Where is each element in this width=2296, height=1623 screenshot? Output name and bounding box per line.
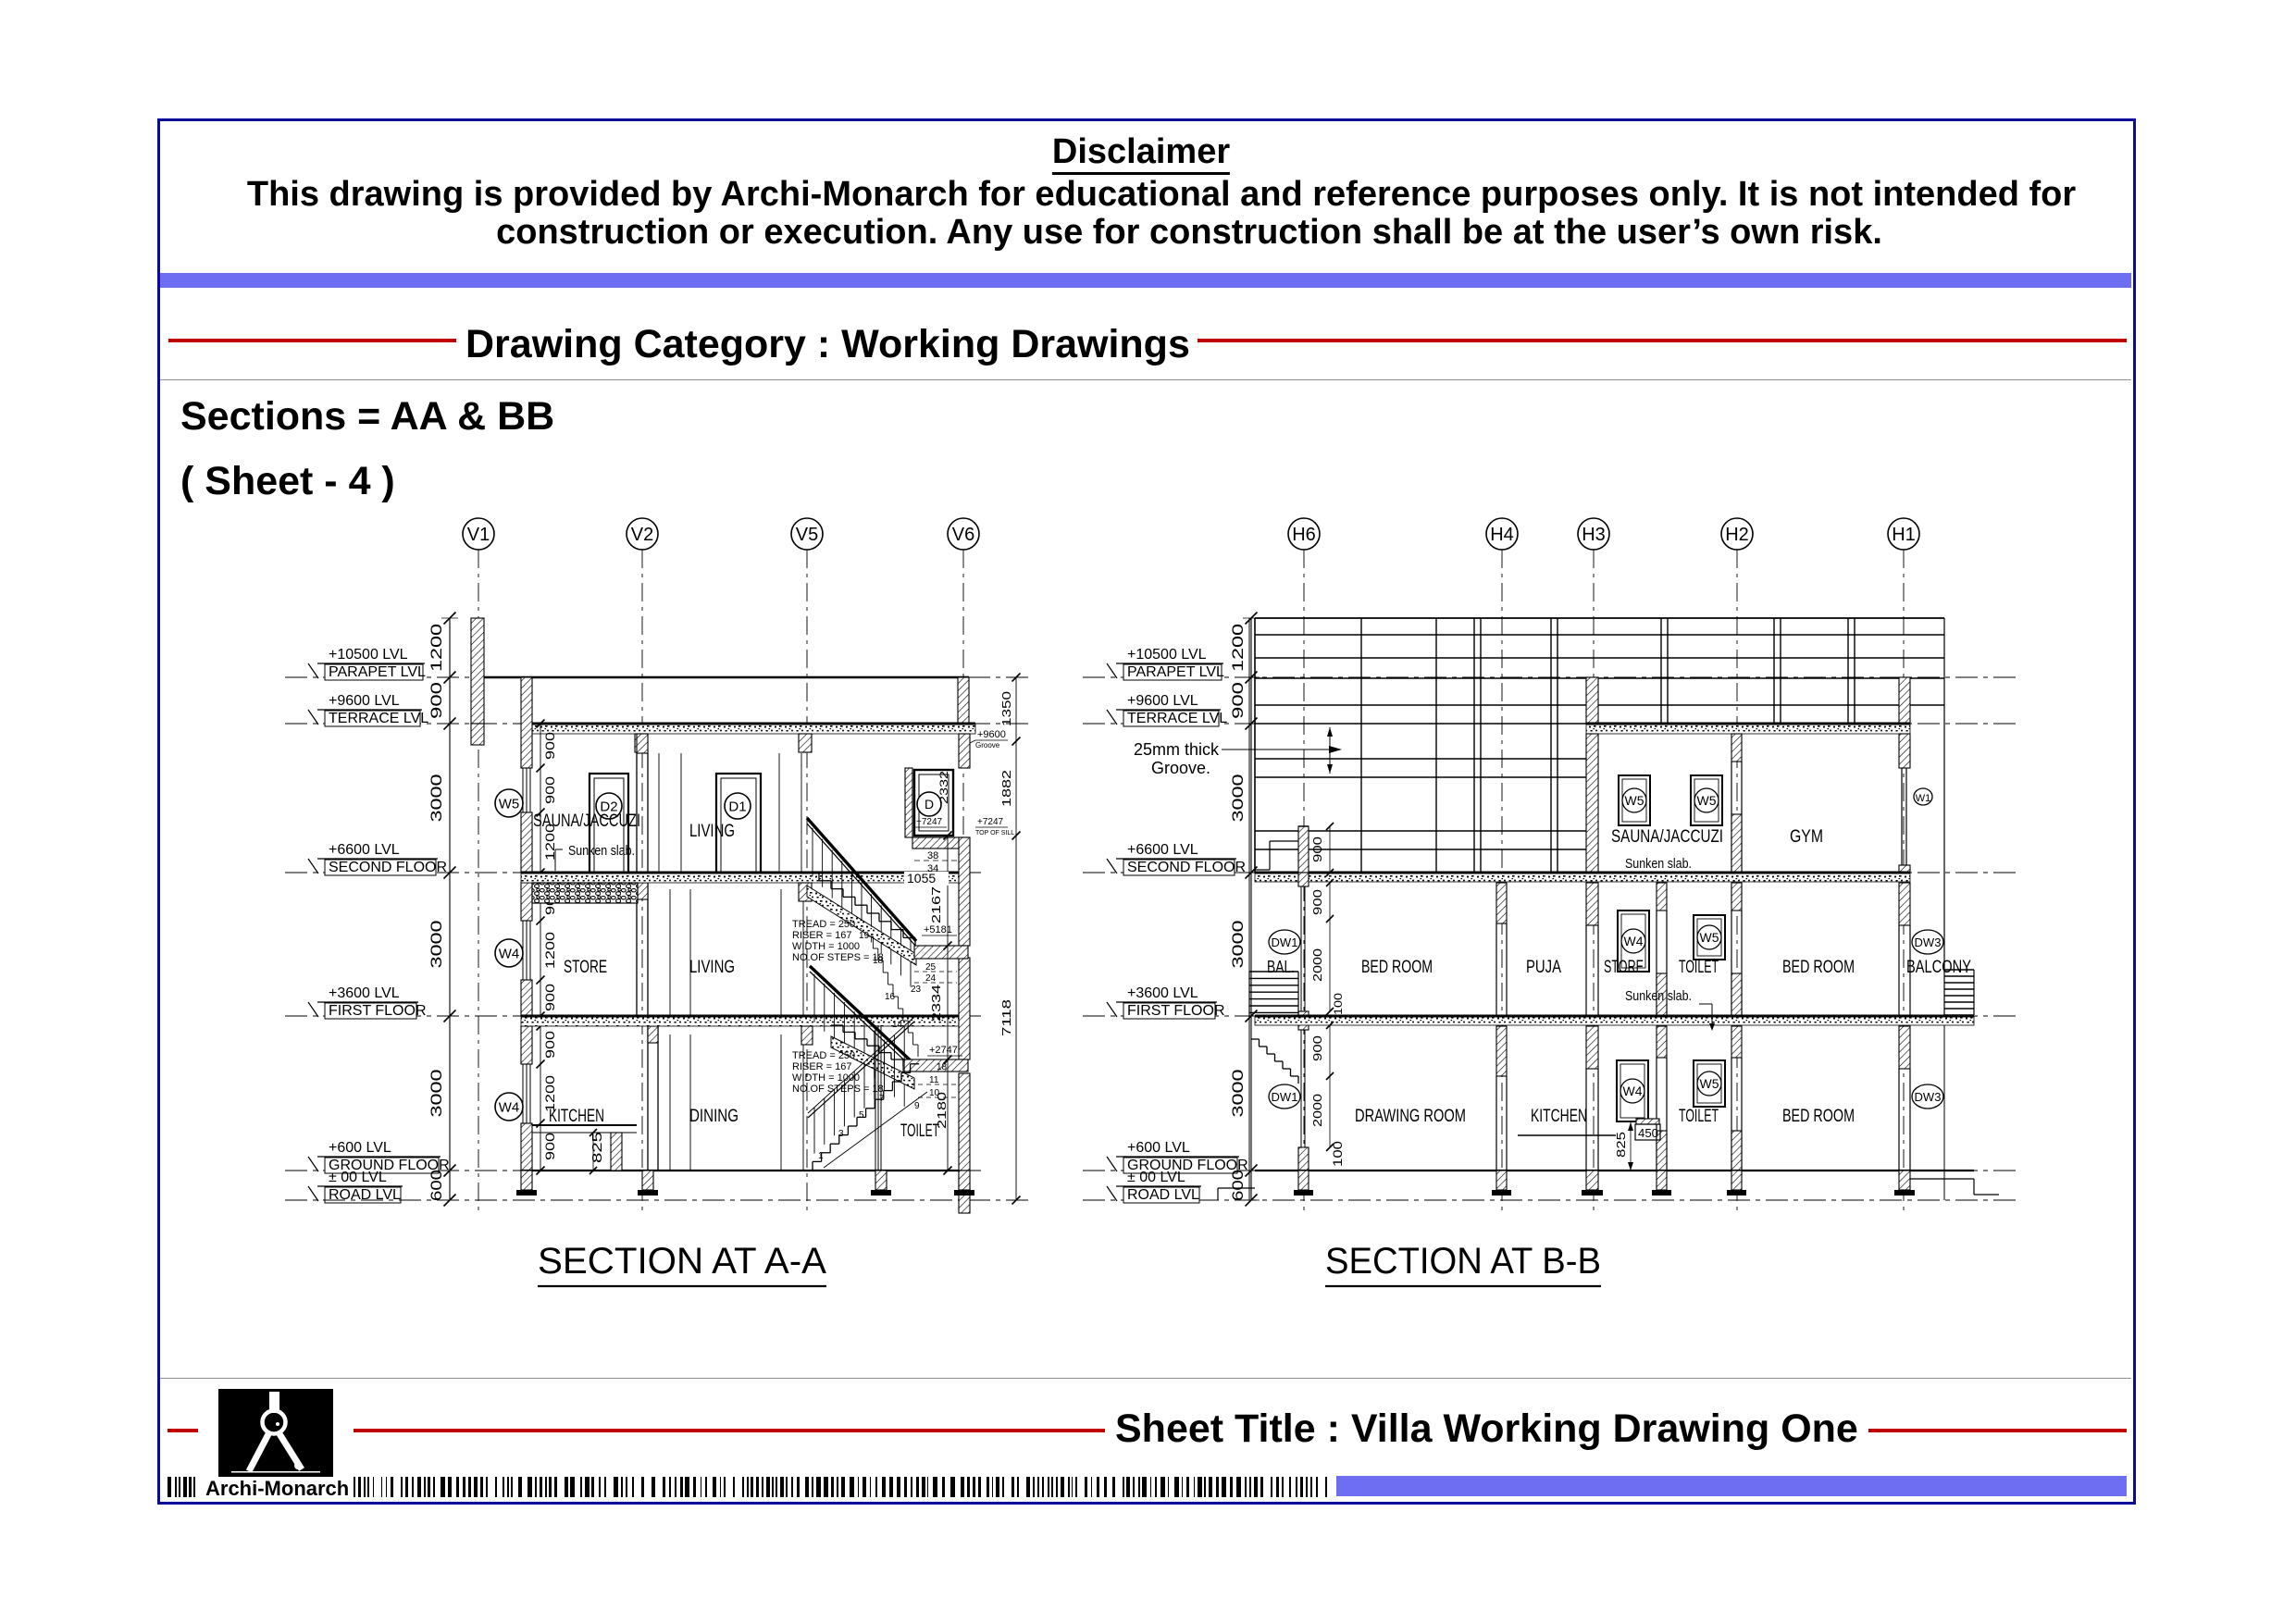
svg-text:Archi-Monarch: Archi-Monarch: [205, 1477, 349, 1500]
